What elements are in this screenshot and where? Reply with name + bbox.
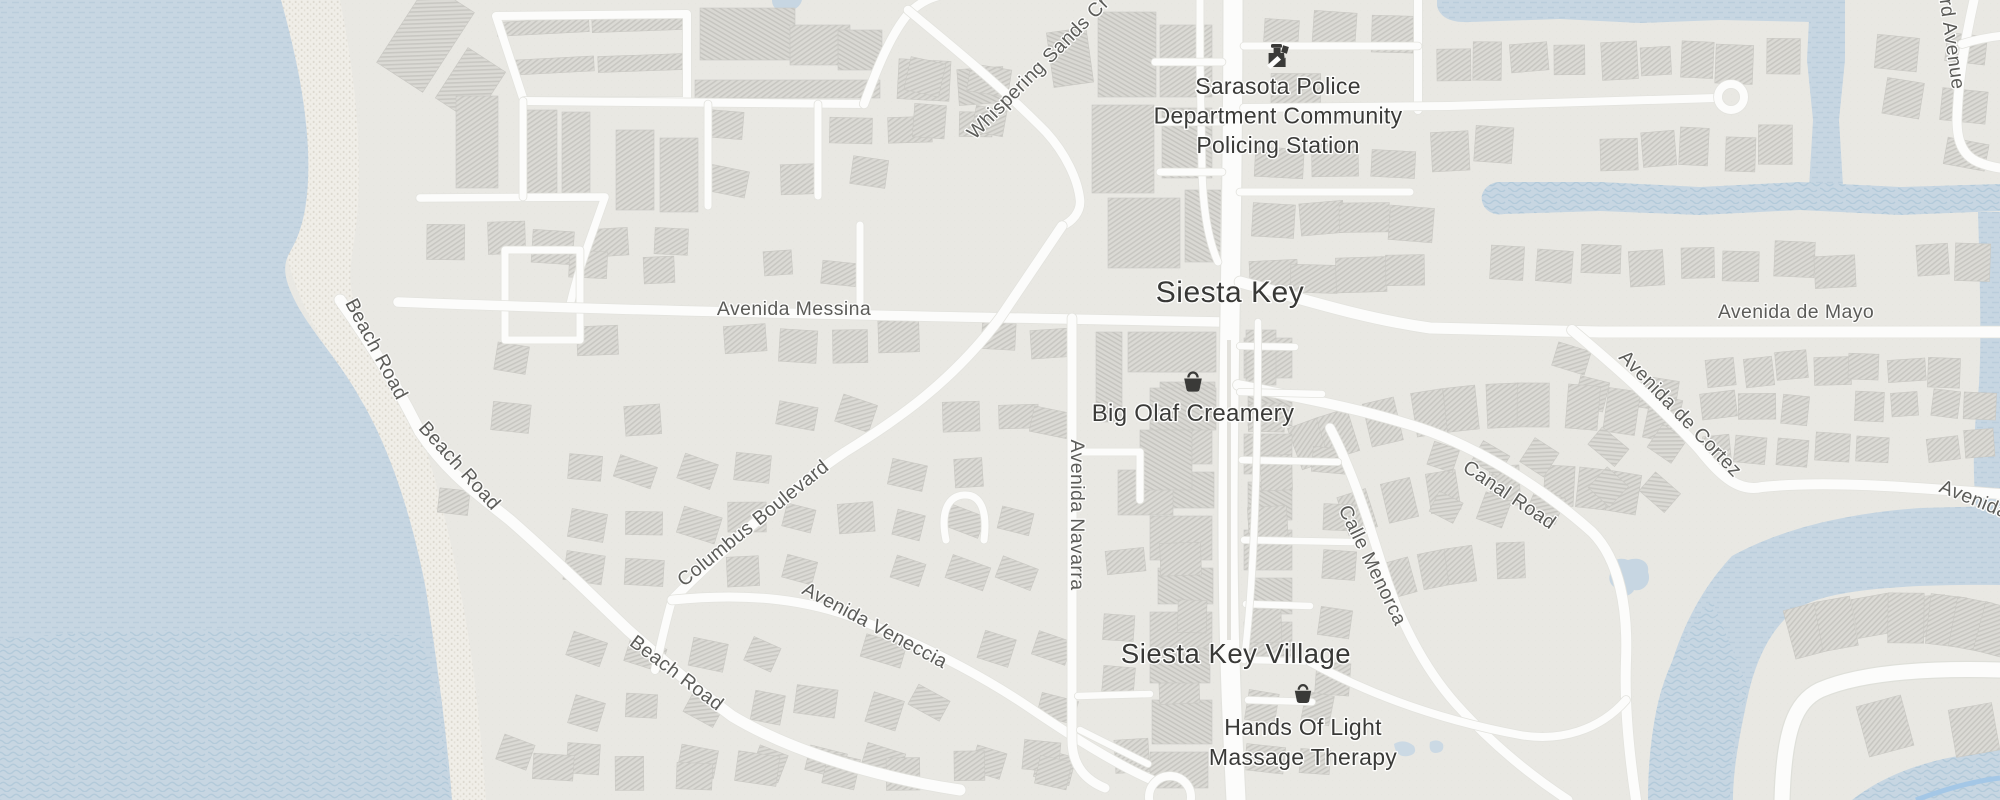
svg-text:Avenida Navarra: Avenida Navarra [1066, 440, 1088, 591]
svg-text:Avenida Messina: Avenida Messina [717, 298, 871, 320]
svg-text:Sarasota Police: Sarasota Police [1195, 73, 1361, 99]
svg-text:Department Community: Department Community [1154, 103, 1403, 129]
svg-text:Avenida de Mayo: Avenida de Mayo [1718, 301, 1874, 323]
svg-text:Hands Of Light: Hands Of Light [1224, 714, 1382, 740]
svg-text:Siesta Key: Siesta Key [1156, 276, 1304, 309]
svg-text:Policing Station: Policing Station [1196, 132, 1359, 158]
svg-text:Massage Therapy: Massage Therapy [1209, 744, 1397, 770]
svg-text:Siesta Key Village: Siesta Key Village [1121, 638, 1351, 669]
svg-text:Big Olaf Creamery: Big Olaf Creamery [1092, 400, 1295, 427]
